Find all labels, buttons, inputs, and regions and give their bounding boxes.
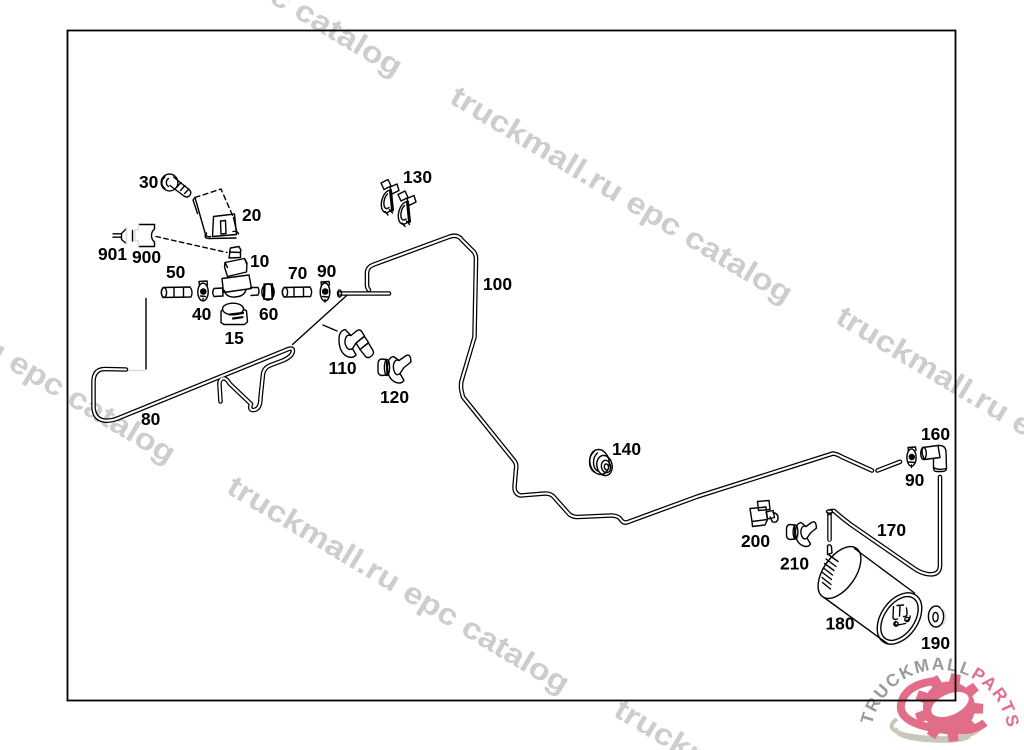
svg-text:80: 80 [141,409,160,429]
svg-text:70: 70 [288,263,307,283]
svg-text:90: 90 [905,470,924,490]
svg-text:110: 110 [329,358,357,378]
svg-text:30: 30 [139,172,158,192]
svg-text:901: 901 [98,244,127,264]
svg-text:100: 100 [483,274,512,294]
svg-text:210: 210 [780,554,809,574]
svg-text:170: 170 [877,520,906,540]
svg-text:40: 40 [192,304,211,324]
svg-text:60: 60 [259,304,278,324]
svg-text:130: 130 [403,167,432,187]
svg-text:20: 20 [242,205,261,225]
svg-text:900: 900 [132,247,161,267]
svg-text:180: 180 [826,614,855,634]
svg-text:10: 10 [250,251,269,271]
svg-text:90: 90 [317,261,336,281]
svg-text:50: 50 [166,262,185,282]
svg-text:160: 160 [921,424,950,444]
svg-text:190: 190 [921,633,950,653]
svg-text:15: 15 [225,328,245,348]
svg-text:200: 200 [741,531,770,551]
svg-text:120: 120 [380,387,409,407]
svg-text:140: 140 [612,439,641,459]
